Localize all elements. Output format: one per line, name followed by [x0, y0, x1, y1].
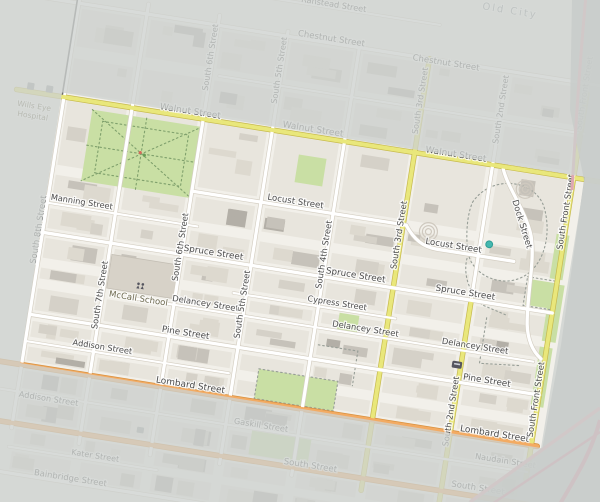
- building: [66, 126, 87, 142]
- building: [67, 247, 85, 261]
- map-viewport[interactable]: Walnut StreetWalnut StreetWalnut StreetL…: [0, 0, 600, 502]
- fountain-icon: [485, 240, 493, 248]
- building: [278, 306, 291, 317]
- park-small: [295, 154, 327, 186]
- building: [177, 345, 197, 362]
- building: [314, 367, 327, 378]
- building: [338, 373, 352, 385]
- building: [235, 159, 253, 176]
- city-block: [409, 156, 486, 231]
- building: [90, 223, 103, 236]
- city-block: [198, 123, 267, 197]
- map-canvas[interactable]: Walnut StreetWalnut StreetWalnut StreetL…: [0, 0, 600, 502]
